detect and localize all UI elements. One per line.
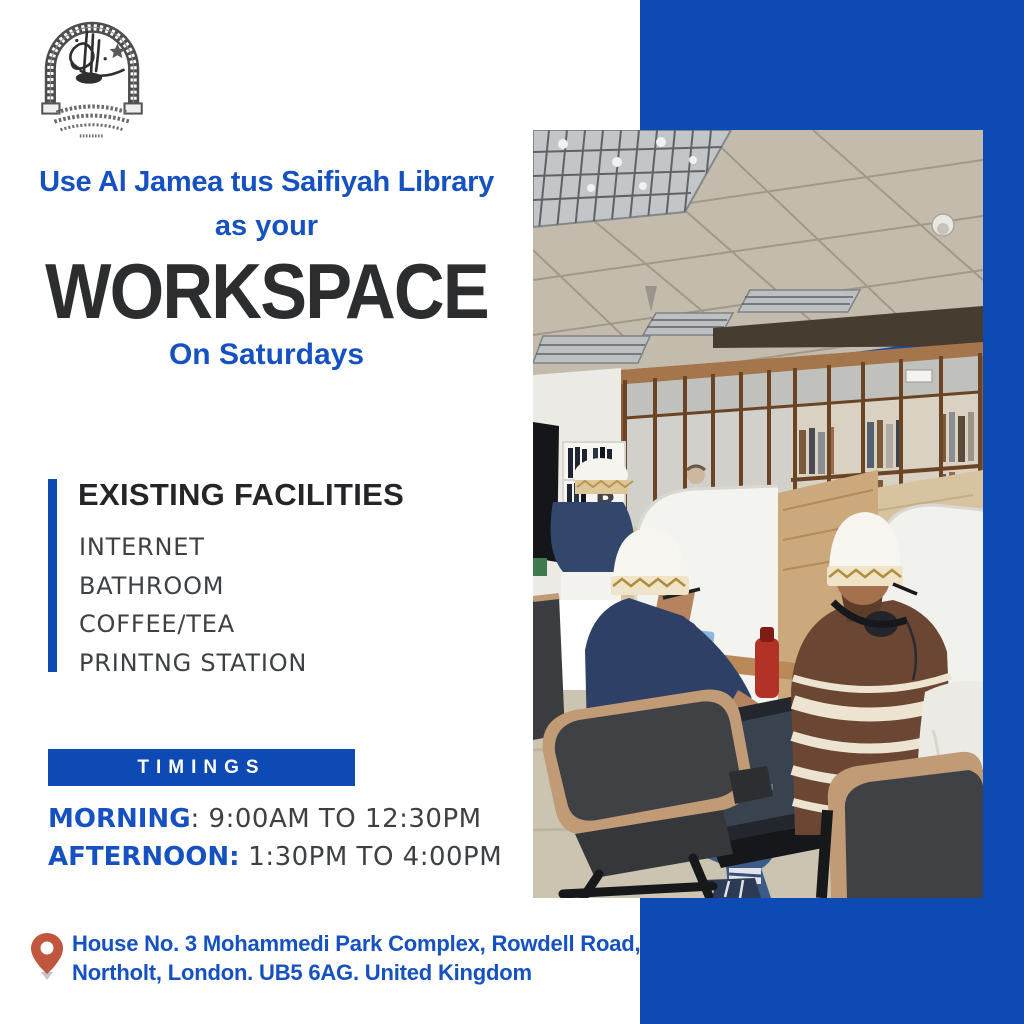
library-photo: B <box>533 130 983 898</box>
location-pin-icon <box>30 932 64 982</box>
facility-item: COFFEE/TEA <box>79 605 307 644</box>
facilities-list: INTERNET BATHROOM COFFEE/TEA PRINTNG STA… <box>79 528 307 682</box>
organisation-logo <box>26 10 158 140</box>
timing-morning: MORNING: 9:00AM TO 12:30PM <box>48 804 482 834</box>
timing-afternoon-label: AFTERNOON: <box>48 842 240 872</box>
cabinet-label <box>906 370 932 382</box>
address-line-1: House No. 3 Mohammedi Park Complex, Rowd… <box>72 929 640 958</box>
facility-item: BATHROOM <box>79 567 307 606</box>
timings-banner: TIMINGS <box>48 749 355 786</box>
headline-line-1: Use Al Jamea tus Saifiyah Library <box>0 166 533 199</box>
facility-item: PRINTNG STATION <box>79 644 307 683</box>
green-book <box>533 558 547 576</box>
smoke-detector-icon <box>932 214 954 236</box>
library-workspace-flyer: Use Al Jamea tus Saifiyah Library as you… <box>0 0 1024 1024</box>
timing-morning-value: : 9:00AM TO 12:30PM <box>191 804 482 834</box>
timing-afternoon-value: 1:30PM TO 4:00PM <box>240 842 503 872</box>
facility-item: INTERNET <box>79 528 307 567</box>
red-bottle <box>755 638 779 698</box>
logo-subtext <box>54 106 129 135</box>
facilities-accent-bar <box>48 479 57 672</box>
headline-line-3: On Saturdays <box>0 338 533 372</box>
timing-morning-label: MORNING <box>48 804 191 834</box>
address-line-2: Northolt, London. UB5 6AG. United Kingdo… <box>72 958 640 987</box>
headline-workspace: WORKSPACE <box>27 246 507 337</box>
facilities-title: EXISTING FACILITIES <box>78 477 404 513</box>
address: House No. 3 Mohammedi Park Complex, Rowd… <box>72 929 640 987</box>
timing-afternoon: AFTERNOON: 1:30PM TO 4:00PM <box>48 842 502 872</box>
headline-line-2: as your <box>0 210 533 243</box>
